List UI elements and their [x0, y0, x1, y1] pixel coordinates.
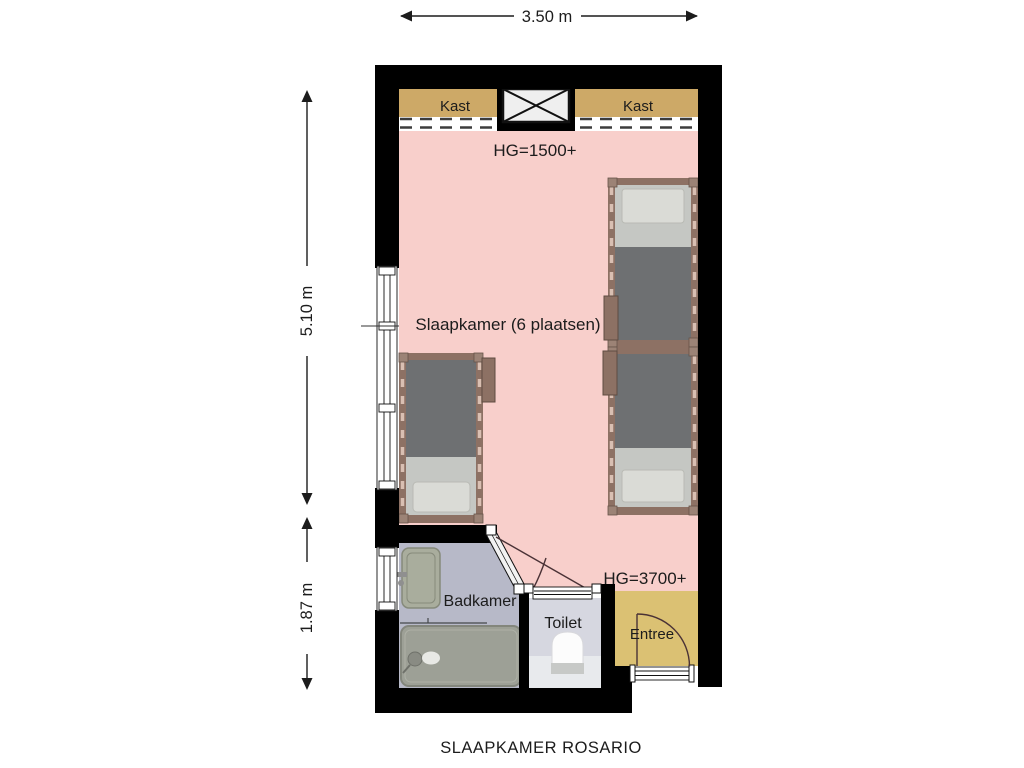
- bed-left: [399, 353, 483, 523]
- door-post: [524, 584, 533, 593]
- bedside-shelf: [603, 351, 617, 395]
- dimension-width-label: 3.50 m: [522, 8, 572, 26]
- sink-icon: [395, 548, 440, 608]
- wall-left-upper: [375, 65, 399, 268]
- toilet-icon: [551, 632, 584, 674]
- arrow-up-icon: [302, 90, 313, 102]
- dimension-width: 3.50 m: [400, 8, 698, 26]
- bed-pillow: [413, 482, 470, 512]
- bed-corner-post: [474, 514, 483, 523]
- dimension-height-upper: 5.10 m: [298, 90, 316, 505]
- ceiling-height-bottom-label: HG=3700+: [603, 569, 686, 588]
- bed-blanket: [406, 360, 476, 457]
- bedside-shelf: [482, 358, 495, 402]
- wall-bottom: [375, 688, 632, 713]
- arrow-down-icon: [302, 678, 313, 690]
- bed-corner-post: [399, 353, 408, 362]
- soap-dish-icon: [422, 652, 440, 665]
- closet-left-label: Kast: [440, 98, 471, 115]
- door-post: [689, 665, 694, 682]
- bed-right-top: [608, 178, 698, 347]
- door-post: [630, 665, 635, 682]
- plan-title: SLAAPKAMER ROSARIO: [440, 739, 642, 757]
- wall-right: [698, 65, 722, 687]
- window-bedroom: [361, 266, 399, 490]
- wall-entry-stub: [601, 666, 632, 713]
- arrow-up-icon: [302, 517, 313, 529]
- shower-head-icon: [408, 652, 422, 666]
- bathroom-label: Badkamer: [444, 593, 518, 610]
- arrow-left-icon: [400, 11, 412, 22]
- ceiling-height-top-label: HG=1500+: [493, 141, 576, 160]
- door-post: [486, 525, 496, 535]
- bed-blanket: [615, 247, 691, 340]
- wall-bathroom-partition: [375, 525, 497, 543]
- bed-corner-post: [689, 347, 698, 356]
- faucet-knob-icon: [398, 580, 404, 586]
- arrow-right-icon: [686, 11, 698, 22]
- bed-right-bottom: [608, 347, 698, 515]
- bedroom-label: Slaapkamer (6 plaatsen): [415, 315, 600, 334]
- bed-corner-post: [608, 506, 617, 515]
- floor-plan-canvas: 3.50 m 5.10 m 1.87 m Kast Kast HG=1500+ …: [0, 0, 1024, 768]
- bed-blanket: [615, 354, 691, 448]
- bed-corner-post: [608, 178, 617, 187]
- bed-corner-post: [689, 338, 698, 347]
- bed-corner-post: [399, 514, 408, 523]
- dimension-height-lower-label: 1.87 m: [298, 583, 316, 633]
- floor-plan-drawing: 3.50 m 5.10 m 1.87 m Kast Kast HG=1500+ …: [0, 0, 1024, 768]
- bed-corner-post: [689, 178, 698, 187]
- dimension-height-lower: 1.87 m: [298, 517, 316, 690]
- entry-label: Entree: [630, 626, 674, 643]
- wall-toilet-left: [519, 584, 529, 688]
- bed-pillow: [622, 189, 684, 223]
- dimension-height-upper-label: 5.10 m: [298, 286, 316, 336]
- window-bathroom: [377, 547, 397, 611]
- toilet-label: Toilet: [544, 615, 582, 632]
- closet-right-label: Kast: [623, 98, 654, 115]
- bathtub-icon: [401, 626, 521, 686]
- bedside-shelf: [604, 296, 618, 340]
- door-post: [592, 584, 601, 593]
- arrow-down-icon: [302, 493, 313, 505]
- bed-corner-post: [689, 506, 698, 515]
- wall-top: [375, 65, 722, 89]
- bed-pillow: [622, 470, 684, 502]
